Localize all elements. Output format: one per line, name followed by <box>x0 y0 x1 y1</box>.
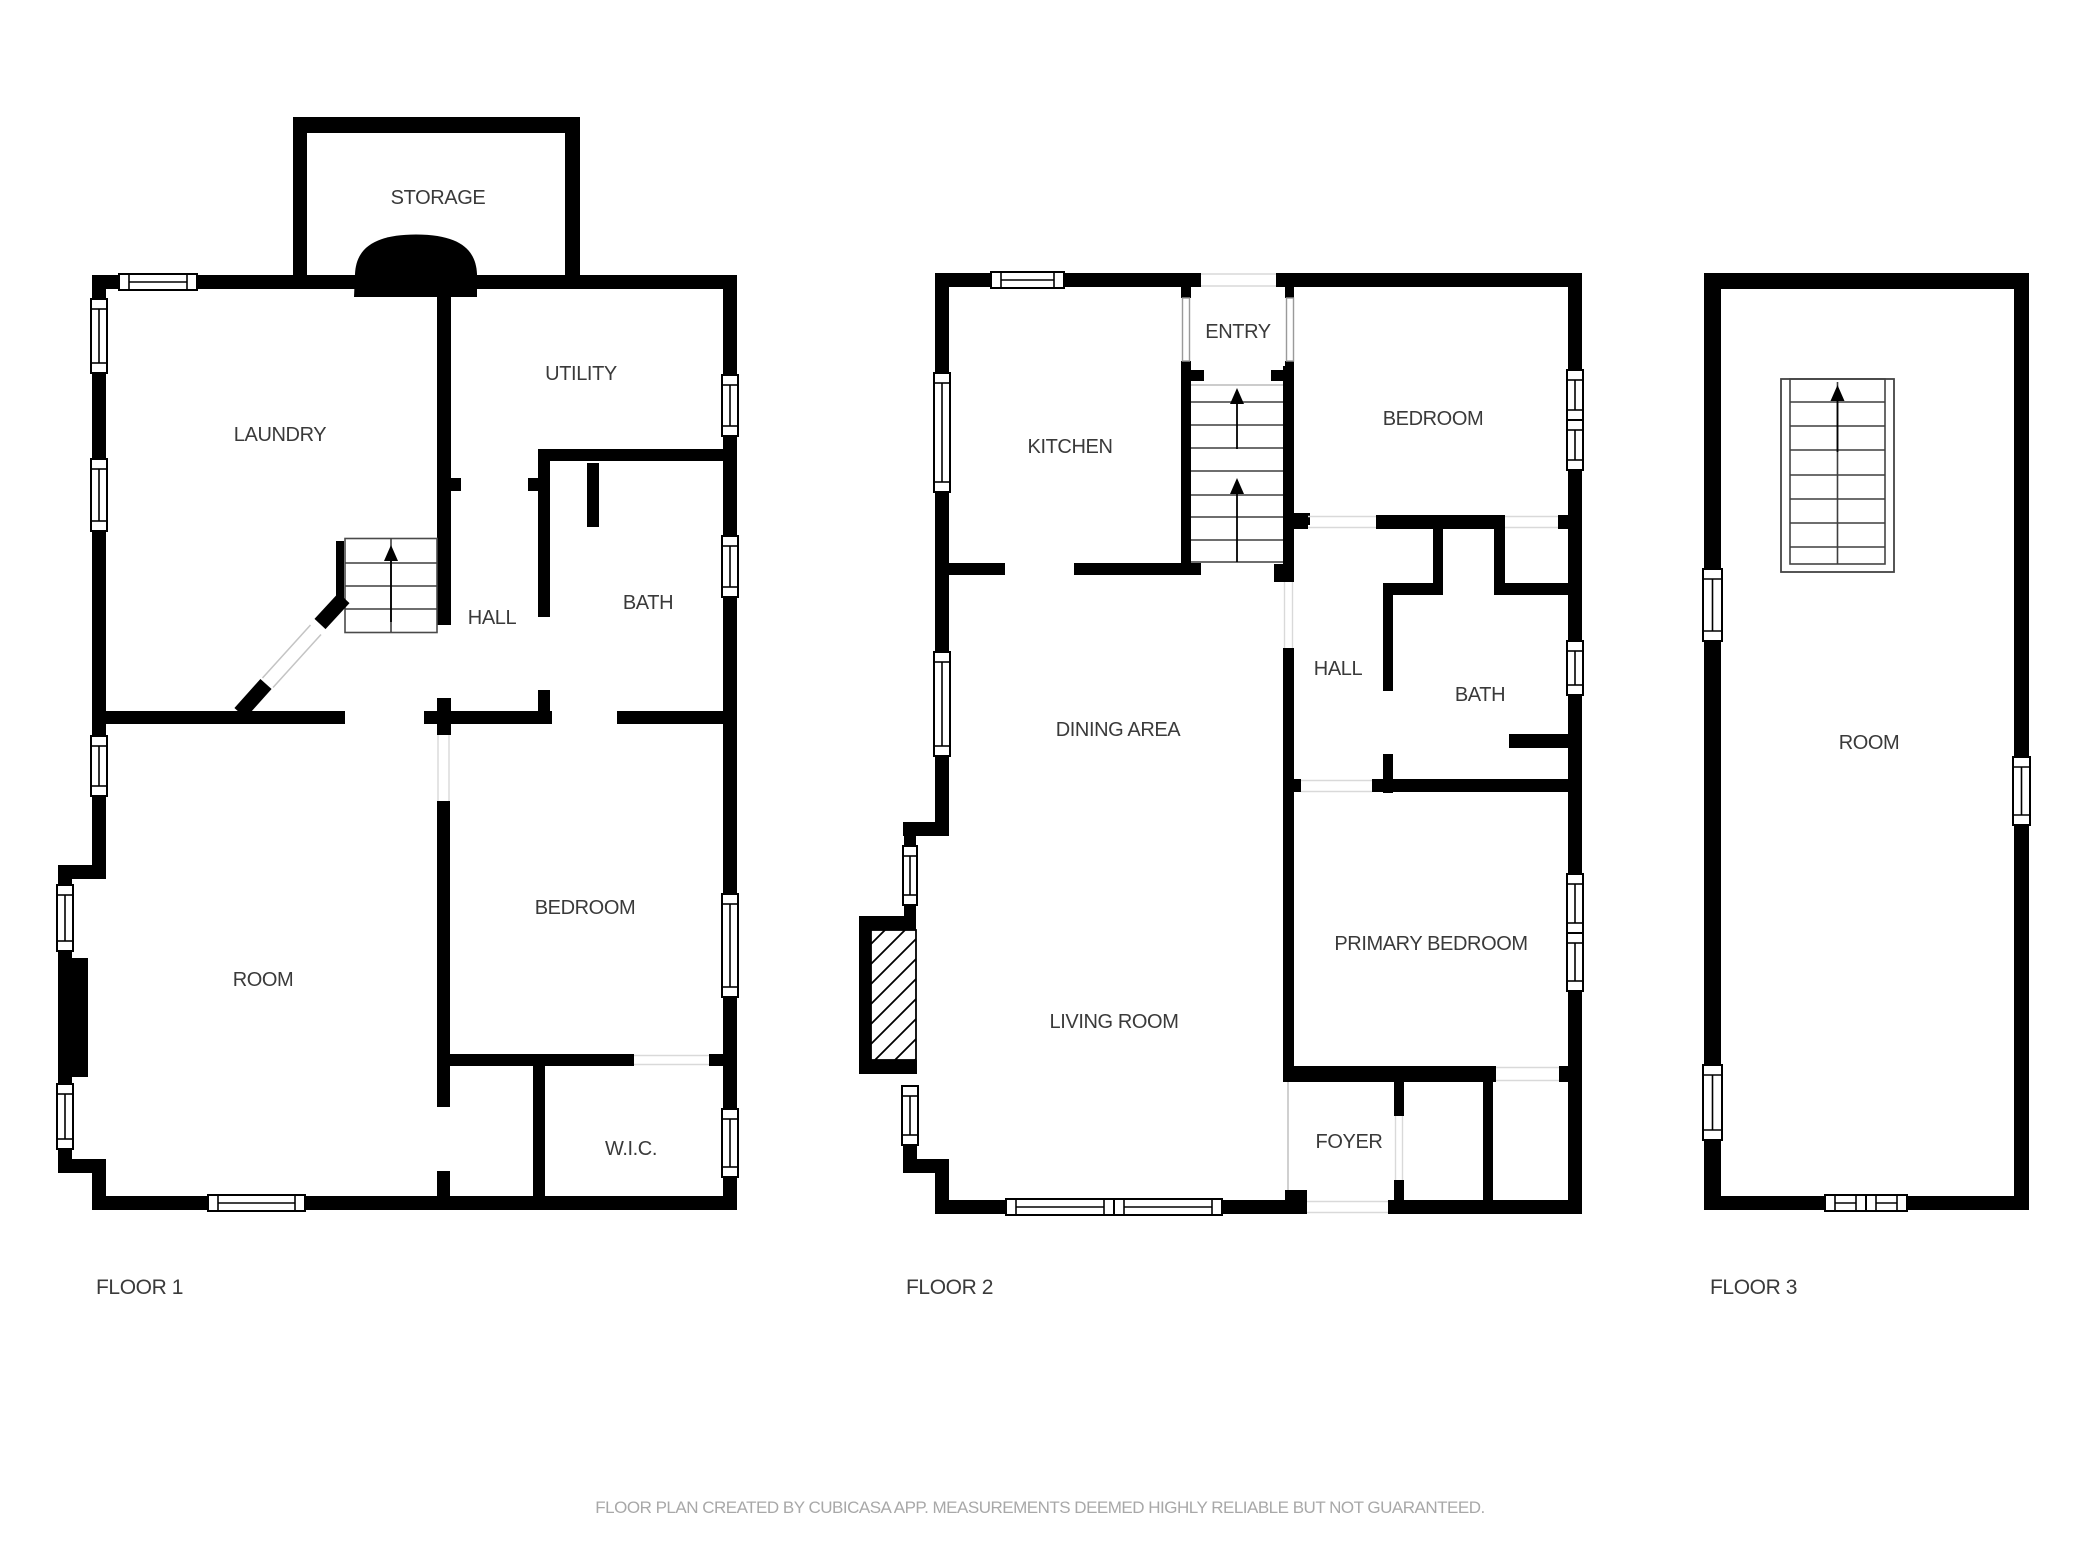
svg-text:KITCHEN: KITCHEN <box>1028 436 1113 458</box>
svg-text:HALL: HALL <box>1314 658 1363 680</box>
svg-text:BEDROOM: BEDROOM <box>535 897 636 919</box>
svg-text:LIVING ROOM: LIVING ROOM <box>1050 1011 1179 1033</box>
svg-text:BATH: BATH <box>623 592 673 614</box>
svg-text:ROOM: ROOM <box>1839 732 1900 754</box>
svg-text:FLOOR 1: FLOOR 1 <box>96 1276 183 1299</box>
svg-text:HALL: HALL <box>468 607 517 629</box>
svg-text:UTILITY: UTILITY <box>545 363 617 385</box>
svg-text:BEDROOM: BEDROOM <box>1383 408 1484 430</box>
svg-text:W.I.C.: W.I.C. <box>605 1138 657 1160</box>
svg-text:PRIMARY BEDROOM: PRIMARY BEDROOM <box>1334 933 1527 955</box>
svg-text:DINING AREA: DINING AREA <box>1056 719 1182 741</box>
svg-text:LAUNDRY: LAUNDRY <box>234 424 326 446</box>
svg-text:BATH: BATH <box>1455 684 1505 706</box>
svg-text:ROOM: ROOM <box>233 969 294 991</box>
svg-text:FOYER: FOYER <box>1316 1131 1383 1153</box>
svg-text:FLOOR 2: FLOOR 2 <box>906 1276 993 1299</box>
svg-text:STORAGE: STORAGE <box>391 187 486 209</box>
svg-text:FLOOR 3: FLOOR 3 <box>1710 1276 1797 1299</box>
svg-text:ENTRY: ENTRY <box>1205 321 1270 343</box>
svg-text:FLOOR PLAN CREATED BY CUBICASA: FLOOR PLAN CREATED BY CUBICASA APP. MEAS… <box>595 1498 1484 1517</box>
